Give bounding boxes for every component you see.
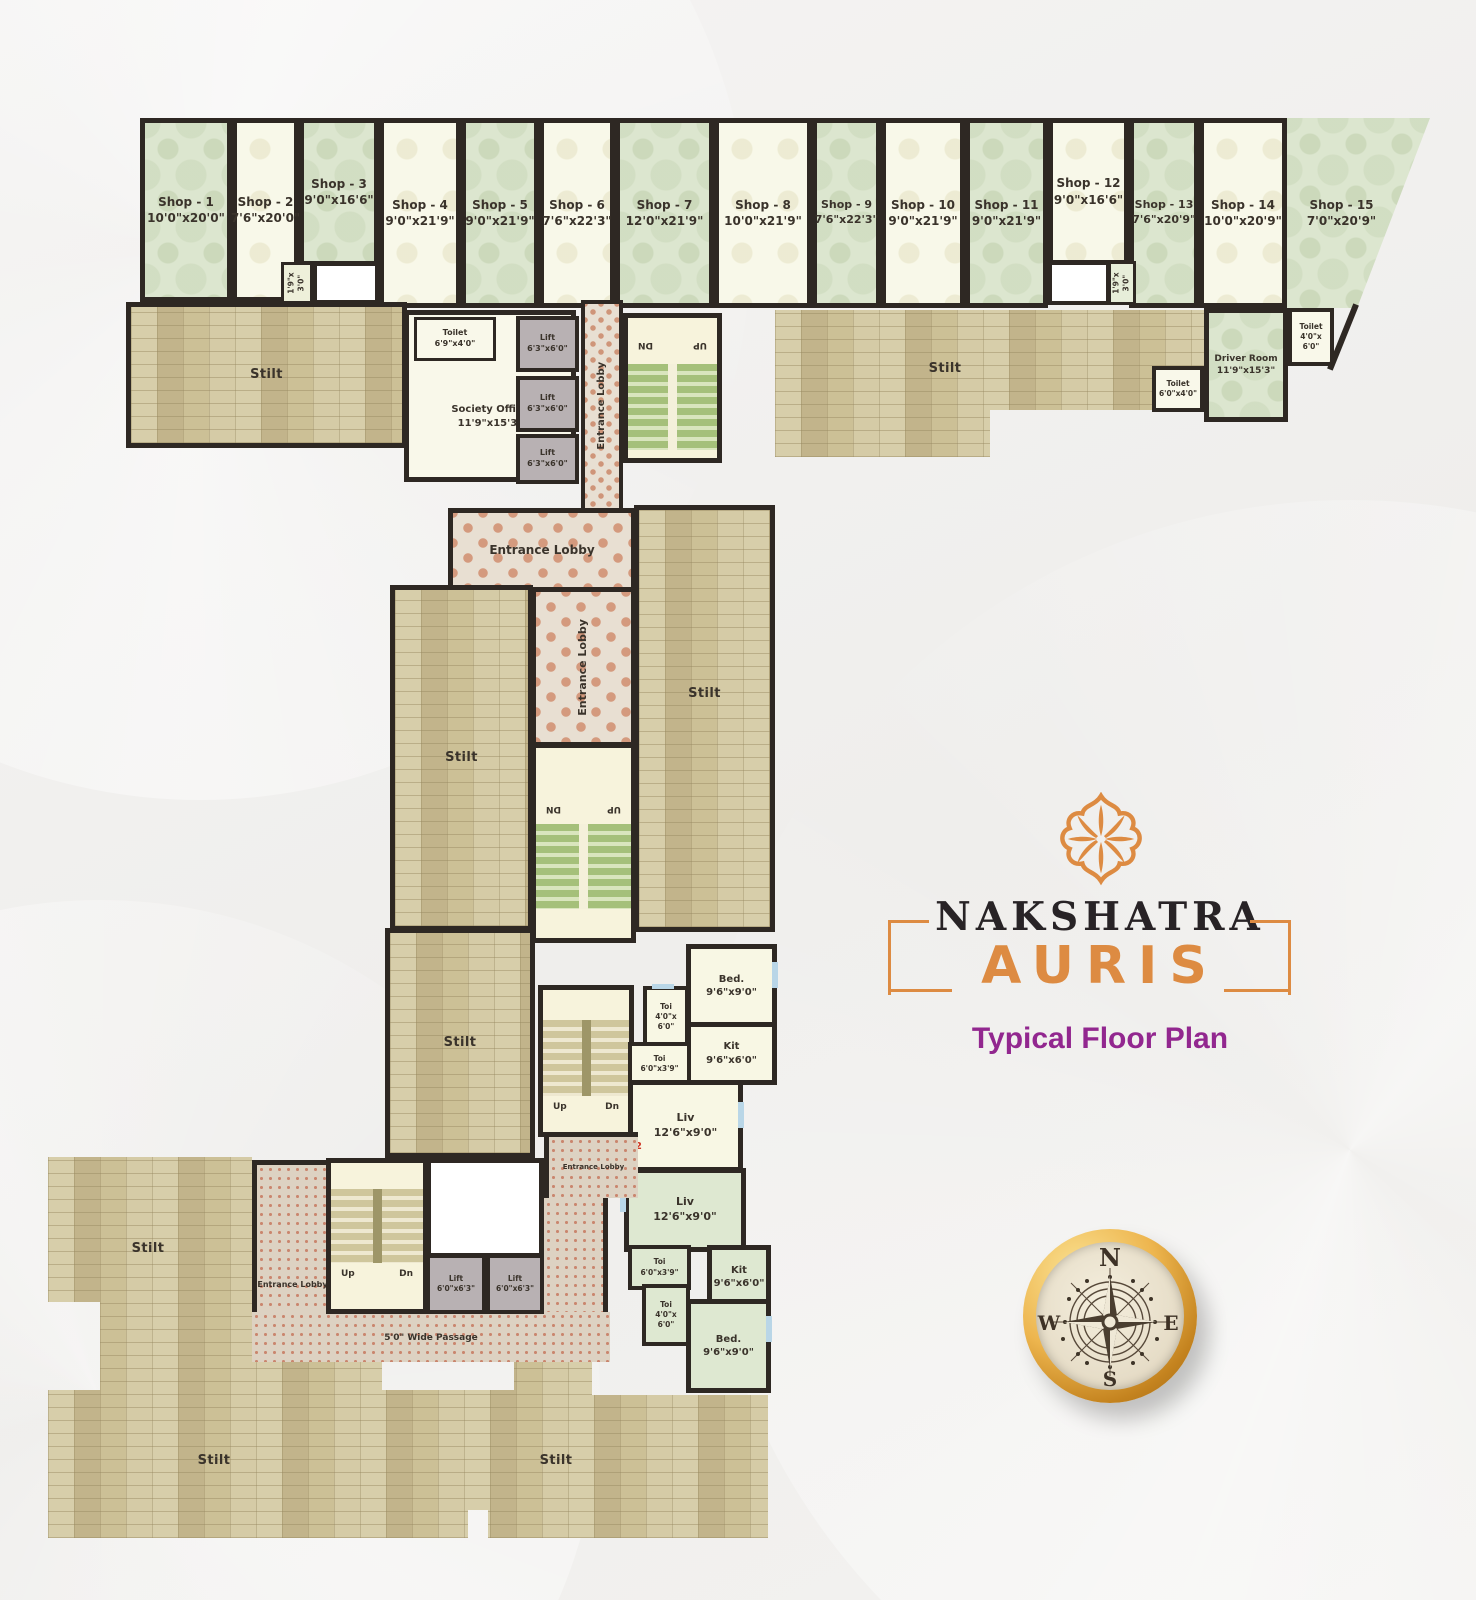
bedroom-label: Bed.9'6"x9'0" bbox=[706, 973, 757, 1000]
lift: Lift6'0"x6'3" bbox=[426, 1254, 486, 1314]
shop-4: Shop - 49'0"x21'9" bbox=[379, 118, 461, 308]
toilet-label: Toi6'0"x3'9" bbox=[640, 1054, 678, 1074]
entrance-lobby-main: Entrance Lobby bbox=[448, 508, 636, 592]
open-cell bbox=[313, 262, 379, 304]
driver-toilet-label: Toilet6'0"x4'0" bbox=[1159, 379, 1197, 399]
staircase-apartment: UpDn bbox=[538, 985, 634, 1137]
stair-direction-labels: UPDN bbox=[638, 340, 707, 350]
brand-bracket-left bbox=[888, 920, 929, 995]
compass-face: N E S W bbox=[1036, 1242, 1184, 1390]
shop-1-label: Shop - 110'0"x20'0" bbox=[147, 194, 225, 226]
page-title: Typical Floor Plan bbox=[898, 1022, 1302, 1056]
window bbox=[652, 984, 674, 989]
shop-4-label: Shop - 49'0"x21'9" bbox=[385, 197, 454, 229]
living-label: Liv12'6"x9'0" bbox=[653, 1195, 717, 1225]
shop-14: Shop - 1410'0"x20'9" bbox=[1199, 118, 1287, 308]
utility-cell-label: 1'9"x3'0" bbox=[287, 272, 307, 293]
brand-name: NAKSHATRA bbox=[898, 894, 1302, 940]
shop-11: Shop - 119'0"x21'9" bbox=[965, 118, 1048, 308]
unit03-bedroom: Bed.9'6"x9'0" bbox=[686, 1299, 771, 1393]
shop-6: Shop - 67'6"x22'3" bbox=[539, 118, 615, 308]
shop-6-label: Shop - 67'6"x22'3" bbox=[542, 197, 611, 229]
stilt-label: Stilt bbox=[688, 685, 721, 703]
window bbox=[766, 1316, 772, 1342]
lift: Lift6'3"x6'0" bbox=[516, 434, 579, 484]
shop-13: Shop - 137'6"x20'9" bbox=[1129, 118, 1199, 308]
entrance-lobby-label: Entrance Lobby bbox=[489, 542, 594, 558]
shop-9-label: Shop - 97'6"x22'3" bbox=[815, 198, 879, 228]
shop-11-label: Shop - 119'0"x21'9" bbox=[972, 197, 1041, 229]
entrance-lobby-label: Entrance Lobby bbox=[251, 1280, 334, 1291]
shop-8: Shop - 810'0"x21'9" bbox=[714, 118, 812, 308]
stilt-label: Stilt bbox=[905, 360, 985, 378]
utility-cell-label: 1'9"x3'0" bbox=[1112, 272, 1132, 293]
lift-label: Lift6'3"x6'0" bbox=[527, 333, 568, 355]
wide-passage: 5'0" Wide Passage bbox=[252, 1312, 610, 1362]
stair-steps bbox=[331, 1189, 423, 1263]
stilt-label: Stilt bbox=[250, 366, 283, 384]
entrance-lobby-label: Entrance Lobby bbox=[549, 1163, 638, 1172]
compass-east: E bbox=[1163, 1311, 1178, 1335]
entrance-lobby-label: Entrance Lobby bbox=[576, 619, 591, 716]
stilt-area-mid-right: Stilt bbox=[634, 505, 775, 932]
stair-steps bbox=[543, 1020, 629, 1096]
shop-10-label: Shop - 109'0"x21'9" bbox=[888, 197, 957, 229]
stilt-label: Stilt bbox=[444, 1034, 477, 1052]
stilt-label: Stilt bbox=[112, 1240, 184, 1258]
unit02-bedroom: Bed.9'6"x9'0" bbox=[686, 944, 777, 1028]
toilet-label: Toi6'0"x3'9" bbox=[640, 1257, 678, 1277]
shop-8-label: Shop - 810'0"x21'9" bbox=[724, 197, 802, 229]
stair-rail bbox=[668, 364, 677, 450]
stair-steps bbox=[536, 824, 631, 909]
toilet-label: Toi4'0"x6'0" bbox=[655, 1002, 676, 1032]
utility-cell: 1'9"x3'0" bbox=[1108, 261, 1136, 305]
stair-rail bbox=[579, 824, 588, 909]
passage-label: 5'0" Wide Passage bbox=[252, 1332, 610, 1344]
toilet-label: Toi4'0"x6'0" bbox=[655, 1300, 676, 1330]
compass-south: S bbox=[1103, 1367, 1117, 1390]
window bbox=[772, 962, 778, 988]
floor-plan-canvas: Shop - 110'0"x20'0" Shop - 27'6"x20'0" S… bbox=[0, 0, 1476, 1600]
shop-5-label: Shop - 59'0"x21'9" bbox=[465, 197, 534, 229]
lift-label: Lift6'0"x6'3" bbox=[437, 1274, 475, 1294]
utility-cell: 1'9"x3'0" bbox=[281, 262, 313, 304]
bedroom-label: Bed.9'6"x9'0" bbox=[703, 1333, 754, 1360]
unit02-kitchen: Kit9'6"x6'0" bbox=[686, 1022, 777, 1085]
driver-room: Driver Room11'9"x15'3" bbox=[1204, 308, 1288, 422]
shop-14-label: Shop - 1410'0"x20'9" bbox=[1204, 197, 1282, 229]
stair-steps bbox=[628, 364, 717, 450]
brand-subname: AURIS bbox=[940, 936, 1260, 996]
lift-label: Lift6'3"x6'0" bbox=[527, 393, 568, 415]
staircase-top: UPDN bbox=[623, 313, 722, 463]
unit02-toilet: Toi4'0"x6'0" bbox=[643, 986, 689, 1048]
stilt-area-mid-left-lower: Stilt bbox=[385, 928, 535, 1158]
stair-rail bbox=[582, 1020, 591, 1096]
compass: N E S W bbox=[1023, 1229, 1197, 1403]
stilt-area-top-right bbox=[775, 310, 1205, 457]
shop-3: Shop - 39'0"x16'6" bbox=[299, 118, 379, 266]
open-room bbox=[426, 1158, 544, 1258]
stilt-label: Stilt bbox=[520, 1452, 592, 1470]
compass-north: N bbox=[1099, 1243, 1121, 1272]
compass-west: W bbox=[1037, 1311, 1061, 1335]
stilt-label: Stilt bbox=[445, 749, 478, 767]
stilt-area-mid-left: Stilt bbox=[390, 585, 533, 931]
shop-5: Shop - 59'0"x21'9" bbox=[461, 118, 539, 308]
compass-rose: N E S W bbox=[1036, 1242, 1184, 1390]
shop-10: Shop - 109'0"x21'9" bbox=[881, 118, 965, 308]
society-toilet: Toilet6'9"x4'0" bbox=[414, 317, 496, 361]
lift: Lift6'3"x6'0" bbox=[516, 316, 579, 372]
staircase-mid: UPDN bbox=[531, 743, 636, 943]
window bbox=[738, 1102, 744, 1128]
stilt-label: Stilt bbox=[178, 1452, 250, 1470]
shop-13-label: Shop - 137'6"x20'9" bbox=[1132, 198, 1196, 228]
lift-label: Lift6'0"x6'3" bbox=[496, 1274, 534, 1294]
living-label: Liv12'6"x9'0" bbox=[654, 1111, 718, 1141]
corner-toilet-label: Toilet4'0"x6'0" bbox=[1299, 322, 1322, 352]
stair-direction-labels: UPDN bbox=[546, 804, 621, 814]
entrance-lobby-label: Entrance Lobby bbox=[595, 362, 609, 450]
stair-rail bbox=[373, 1189, 382, 1263]
shop-2-label: Shop - 27'6"x20'0" bbox=[231, 194, 300, 226]
entrance-lobby-strip: Entrance Lobby bbox=[581, 300, 623, 512]
unit02-living: Liv12'6"x9'0" bbox=[628, 1080, 743, 1172]
shop-7-label: Shop - 712'0"x21'9" bbox=[626, 197, 704, 229]
driver-toilet: Toilet6'0"x4'0" bbox=[1152, 366, 1204, 412]
lift: Lift6'0"x6'3" bbox=[486, 1254, 544, 1314]
lift: Lift6'3"x6'0" bbox=[516, 376, 579, 432]
shop-7: Shop - 712'0"x21'9" bbox=[615, 118, 714, 308]
kitchen-label: Kit9'6"x6'0" bbox=[714, 1264, 765, 1291]
brand-flower-icon bbox=[1054, 792, 1148, 888]
lift-label: Lift6'3"x6'0" bbox=[527, 448, 568, 470]
corner-toilet: Toilet4'0"x6'0" bbox=[1288, 308, 1334, 366]
shop-9: Shop - 97'6"x22'3" bbox=[812, 118, 881, 308]
shop-3-label: Shop - 39'0"x16'6" bbox=[304, 176, 373, 208]
staircase-rear: UpDn bbox=[326, 1158, 428, 1314]
stair-direction-labels: UpDn bbox=[341, 1269, 413, 1279]
shop-1: Shop - 110'0"x20'0" bbox=[140, 118, 232, 302]
kitchen-label: Kit9'6"x6'0" bbox=[706, 1040, 757, 1067]
stilt-area-top-left: Stilt bbox=[126, 302, 407, 448]
driver-room-label: Driver Room11'9"x15'3" bbox=[1214, 353, 1277, 377]
entrance-lobby-connector: Entrance Lobby bbox=[544, 1132, 638, 1198]
shop-12-label: Shop - 129'0"x16'6" bbox=[1054, 175, 1123, 207]
entrance-lobby-vertical: Entrance Lobby bbox=[531, 587, 636, 747]
society-toilet-label: Toilet6'9"x4'0" bbox=[435, 328, 476, 350]
shop-12: Shop - 129'0"x16'6" bbox=[1048, 118, 1129, 265]
stair-direction-labels: UpDn bbox=[553, 1102, 619, 1112]
open-cell bbox=[1048, 261, 1110, 305]
shop-15-label: Shop - 157'0"x20'9" bbox=[1307, 197, 1376, 229]
unit03-toilet: Toi4'0"x6'0" bbox=[642, 1284, 690, 1346]
unit03-living: Liv12'6"x9'0" bbox=[624, 1168, 746, 1252]
shop-15: Shop - 157'0"x20'9" bbox=[1287, 118, 1430, 308]
